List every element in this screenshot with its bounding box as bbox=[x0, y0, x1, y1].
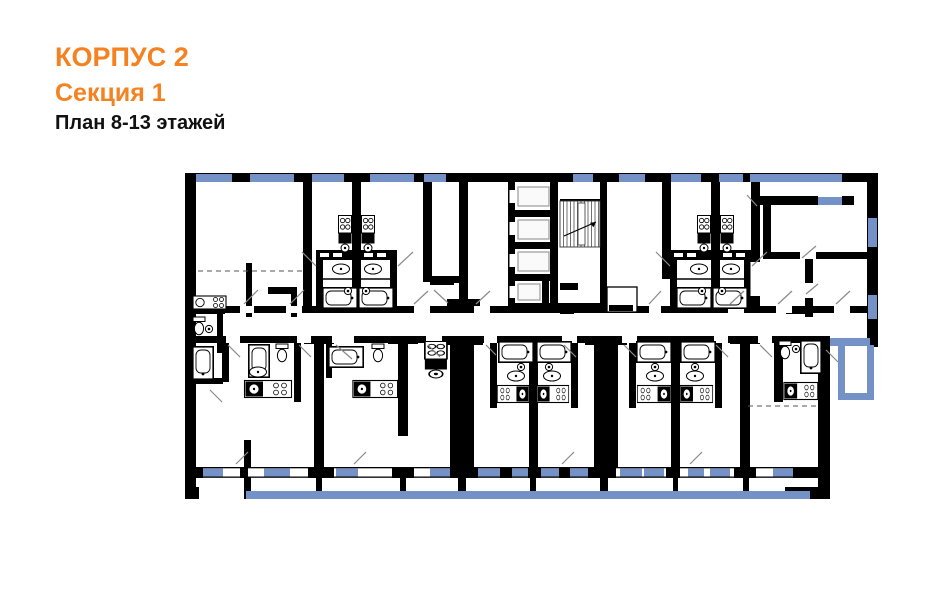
bathtub-icon bbox=[637, 342, 671, 362]
toilet-icon bbox=[372, 344, 384, 362]
kitchen-counter bbox=[537, 386, 568, 403]
kitchen-counter bbox=[353, 381, 398, 398]
kitchen-counter bbox=[497, 386, 528, 403]
faucet-icon bbox=[344, 287, 351, 294]
sink-icon bbox=[365, 264, 382, 274]
vent-grille bbox=[609, 305, 633, 311]
sink-icon bbox=[333, 264, 350, 274]
bathtub-icon bbox=[681, 342, 715, 362]
floor-plan-svg bbox=[0, 0, 941, 600]
stove-icon bbox=[698, 216, 711, 253]
elevator-car bbox=[518, 187, 549, 206]
sink-icon bbox=[691, 264, 708, 274]
sink-icon bbox=[687, 371, 704, 381]
stove-icon bbox=[362, 216, 375, 253]
kitchenette bbox=[193, 296, 226, 309]
faucet-icon bbox=[718, 287, 725, 294]
bathtub-icon bbox=[193, 347, 213, 379]
vent-ducts bbox=[607, 287, 637, 312]
right-balcony-rail bbox=[867, 345, 874, 400]
stove-icon bbox=[721, 216, 734, 253]
toilet-icon bbox=[276, 344, 288, 362]
faucet-icon bbox=[698, 287, 705, 294]
stair-stringer bbox=[578, 203, 585, 245]
toilet-icon bbox=[193, 317, 205, 335]
kitchen-counter bbox=[680, 386, 712, 403]
sink-icon bbox=[508, 371, 525, 381]
faucet-icon bbox=[517, 363, 524, 370]
balcony-door-unit bbox=[830, 338, 870, 346]
bathtub-icon bbox=[801, 341, 821, 373]
page: КОРПУС 2 Секция 1 План 8-13 этажей bbox=[0, 0, 941, 600]
faucet-icon bbox=[205, 325, 212, 332]
kitchen-counter bbox=[245, 381, 292, 398]
faucet-icon bbox=[691, 363, 698, 370]
elevator-car bbox=[518, 284, 540, 300]
sink-icon bbox=[723, 264, 740, 274]
sink-icon bbox=[544, 371, 561, 381]
bathtub-icon bbox=[329, 347, 363, 367]
kitchen-counter bbox=[637, 386, 670, 403]
faucet-icon bbox=[362, 287, 369, 294]
bathtub-icon bbox=[499, 342, 533, 362]
toilet-icon bbox=[779, 341, 791, 359]
stove-icon bbox=[425, 342, 447, 379]
bathtub-icon bbox=[537, 342, 571, 362]
staircase bbox=[560, 201, 600, 247]
elevator-car bbox=[518, 252, 549, 271]
sink-icon bbox=[647, 371, 664, 381]
kitchen-counter bbox=[784, 383, 818, 400]
right-balcony-rail bbox=[838, 345, 845, 400]
bathroom-fixtures bbox=[193, 287, 821, 381]
bottom-balcony-rail bbox=[246, 491, 810, 499]
sink-icon bbox=[250, 367, 267, 377]
elevator-car bbox=[518, 220, 549, 239]
stove-icon bbox=[339, 216, 352, 253]
faucet-icon bbox=[545, 363, 552, 370]
faucet-icon bbox=[651, 363, 658, 370]
faucet-icon bbox=[792, 345, 799, 352]
